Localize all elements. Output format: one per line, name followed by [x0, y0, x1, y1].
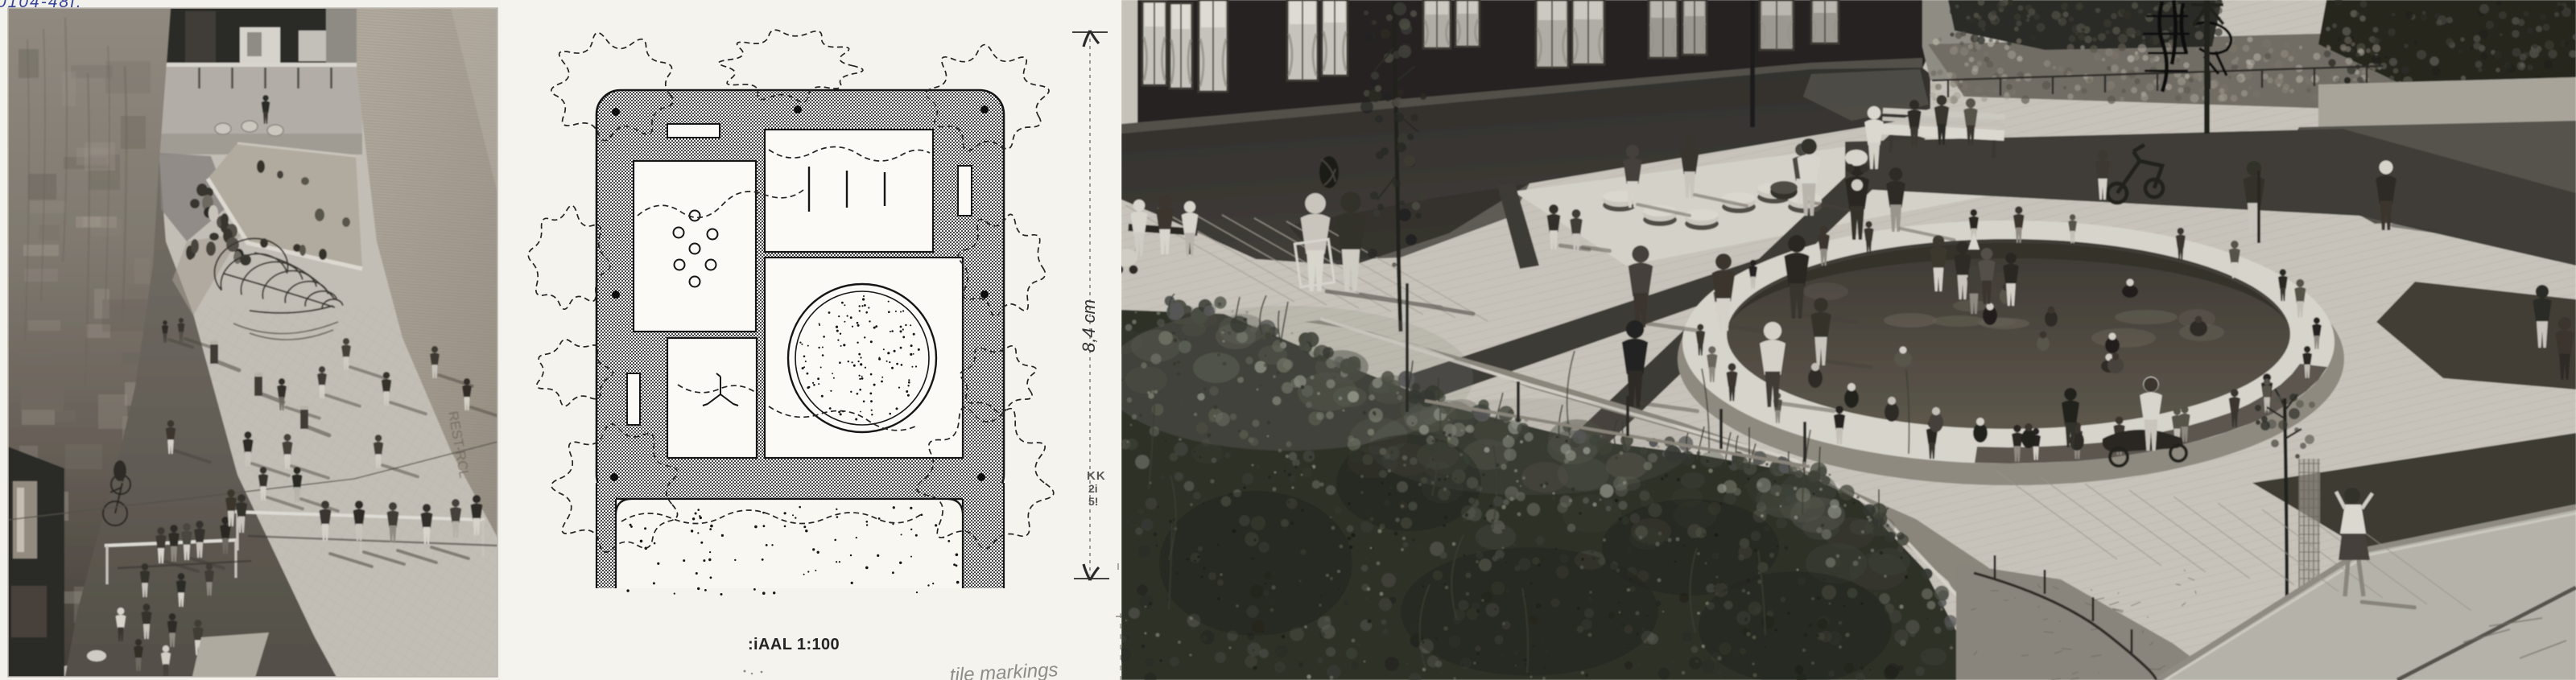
svg-text:2i: 2i [1088, 482, 1098, 495]
svg-text:8,4 cm: 8,4 cm [1079, 299, 1099, 352]
svg-text:KK: KK [1087, 469, 1106, 483]
svg-text:5!: 5! [1088, 495, 1098, 508]
svg-text::iAAL 1:100: :iAAL 1:100 [748, 636, 840, 653]
